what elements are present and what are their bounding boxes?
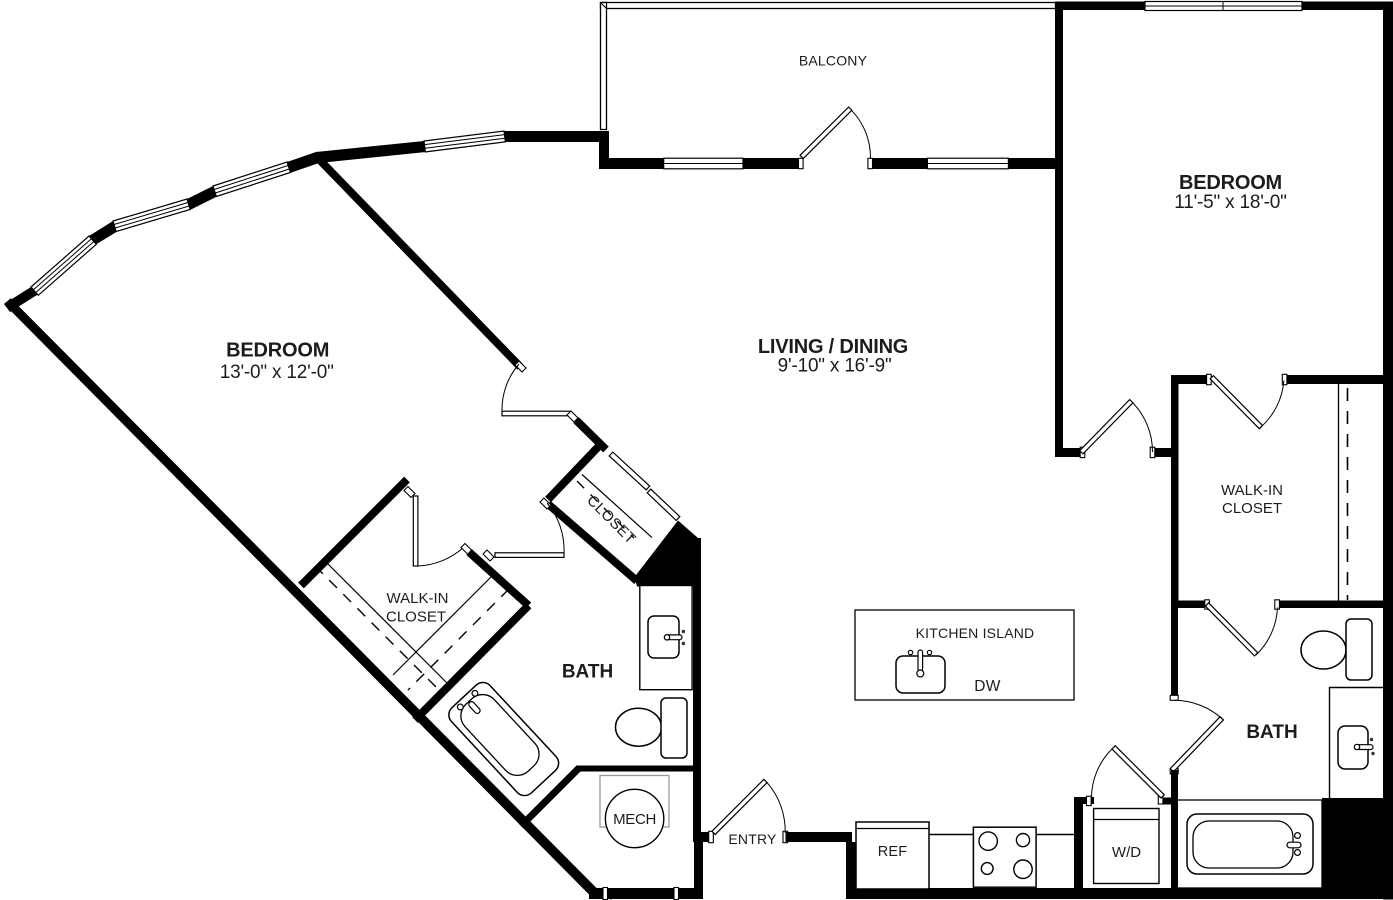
svg-text:MECH: MECH <box>613 811 656 828</box>
svg-text:W/D: W/D <box>1112 844 1141 861</box>
svg-text:WALK-IN: WALK-IN <box>387 590 449 607</box>
svg-text:WALK-IN: WALK-IN <box>1221 482 1283 499</box>
svg-text:13'-0" x 12'-0": 13'-0" x 12'-0" <box>220 362 334 383</box>
svg-text:BATH: BATH <box>562 662 613 683</box>
svg-text:BEDROOM: BEDROOM <box>1179 172 1282 194</box>
svg-text:9'-10" x 16'-9": 9'-10" x 16'-9" <box>778 356 892 377</box>
svg-text:CLOSET: CLOSET <box>1222 500 1282 517</box>
svg-text:ENTRY: ENTRY <box>728 831 777 847</box>
svg-text:CLOSET: CLOSET <box>386 609 446 626</box>
svg-text:BATH: BATH <box>1246 722 1297 743</box>
svg-text:REF: REF <box>878 844 908 860</box>
svg-text:BEDROOM: BEDROOM <box>226 340 329 362</box>
svg-text:DW: DW <box>974 678 1000 695</box>
svg-text:BALCONY: BALCONY <box>799 53 868 69</box>
svg-text:KITCHEN ISLAND: KITCHEN ISLAND <box>916 625 1035 641</box>
svg-text:11'-5" x 18'-0": 11'-5" x 18'-0" <box>1174 192 1286 213</box>
